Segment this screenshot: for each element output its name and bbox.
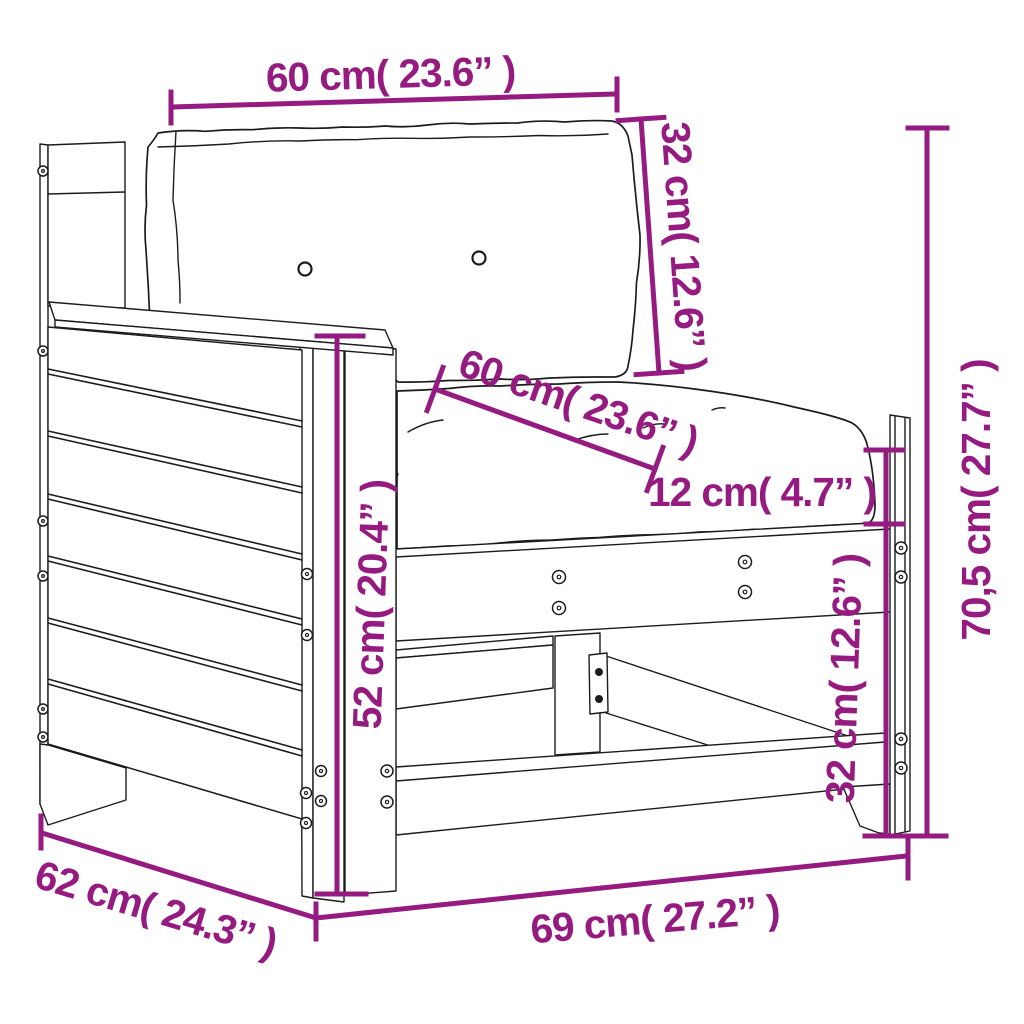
svg-text:52 cm( 20.4” ): 52 cm( 20.4” ) xyxy=(344,479,399,730)
svg-text:12 cm( 4.7” ): 12 cm( 4.7” ) xyxy=(648,469,876,515)
svg-text:32 cm( 12.6” ): 32 cm( 12.6” ) xyxy=(817,553,872,804)
svg-text:60 cm( 23.6” ): 60 cm( 23.6” ) xyxy=(265,47,516,100)
svg-text:70,5 cm( 27.7” ): 70,5 cm( 27.7” ) xyxy=(953,359,999,640)
